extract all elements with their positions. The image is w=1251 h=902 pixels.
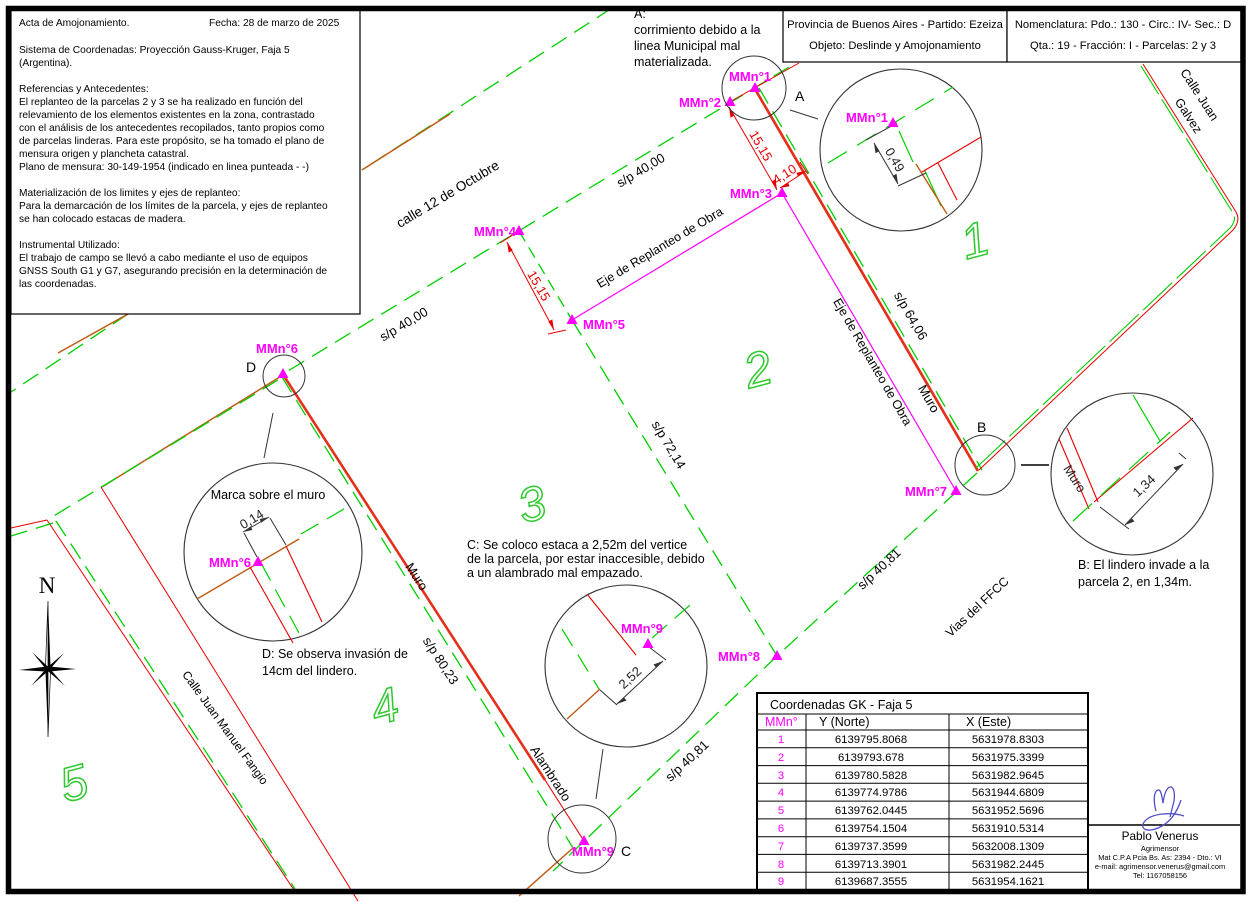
svg-text:MMn°9: MMn°9 [621, 621, 663, 636]
svg-text:El trabajo de campo se llevó a: El trabajo de campo se llevó a cabo medi… [19, 253, 308, 264]
svg-text:Fecha: 28 de marzo de 2025: Fecha: 28 de marzo de 2025 [209, 18, 340, 29]
svg-text:6139713.3901: 6139713.3901 [835, 859, 907, 871]
svg-text:6139687.3555: 6139687.3555 [835, 876, 907, 888]
svg-text:5631944.6809: 5631944.6809 [972, 787, 1044, 799]
svg-text:Para la demarcación de los lím: Para la demarcación de los límites de la… [19, 201, 328, 212]
svg-text:Qta.: 19 - Fracción: I - Parce: Qta.: 19 - Fracción: I - Parcelas: 2 y 3 [1030, 40, 1216, 52]
svg-text:(Argentina).: (Argentina). [19, 58, 72, 69]
svg-text:Y (Norte): Y (Norte) [819, 715, 869, 729]
svg-text:MMn°8: MMn°8 [718, 649, 760, 664]
svg-text:Acta de Amojonamiento.: Acta de Amojonamiento. [19, 18, 129, 29]
svg-text:2: 2 [778, 752, 784, 764]
svg-text:5631975.3399: 5631975.3399 [972, 752, 1044, 764]
svg-text:6: 6 [778, 823, 784, 835]
svg-text:linea Municipal mal: linea Municipal mal [634, 39, 740, 53]
svg-text:MMn°: MMn° [765, 715, 798, 729]
svg-text:6139737.3599: 6139737.3599 [835, 841, 907, 853]
svg-text:6139780.5828: 6139780.5828 [835, 770, 907, 782]
svg-text:Sistema de Coordenadas: Proyec: Sistema de Coordenadas: Proyección Gauss… [19, 45, 290, 56]
svg-text:MMn°6: MMn°6 [209, 555, 251, 570]
svg-text:4: 4 [778, 787, 784, 799]
svg-text:MMn°6: MMn°6 [256, 341, 298, 356]
svg-text:6139793.678: 6139793.678 [838, 752, 904, 764]
svg-text:5: 5 [778, 805, 784, 817]
svg-text:14cm del lindero.: 14cm del lindero. [262, 664, 357, 678]
svg-text:6139774.9786: 6139774.9786 [835, 787, 907, 799]
svg-text:Materialización de los limites: Materialización de los limites y ejes de… [19, 188, 240, 199]
svg-text:D: D [246, 359, 256, 375]
svg-text:Instrumental Utilizado:: Instrumental Utilizado: [19, 240, 120, 251]
svg-text:7: 7 [778, 841, 784, 853]
svg-text:materializada.: materializada. [634, 55, 712, 69]
svg-text:MMn°3: MMn°3 [730, 186, 772, 201]
svg-text:6139762.0445: 6139762.0445 [835, 805, 907, 817]
svg-text:9: 9 [778, 876, 784, 888]
svg-text:MMn°1: MMn°1 [729, 69, 771, 84]
svg-text:Tel: 1167058156: Tel: 1167058156 [1133, 871, 1187, 880]
svg-text:N: N [39, 573, 56, 598]
svg-text:Marca sobre el muro: Marca sobre el muro [211, 488, 326, 502]
svg-text:6139795.8068: 6139795.8068 [835, 734, 907, 746]
svg-text:MMn°2: MMn°2 [679, 95, 721, 110]
svg-text:parcela 2, en 1,34m.: parcela 2, en 1,34m. [1078, 575, 1192, 589]
svg-text:Plano de mensura: 30-149-1954: Plano de mensura: 30-149-1954 (indicado … [19, 162, 309, 173]
svg-text:3: 3 [778, 770, 784, 782]
svg-text:e-mail: agrimensor.venerus@gma: e-mail: agrimensor.venerus@gmail.com [1095, 862, 1225, 871]
svg-text:Objeto: Deslinde y Amojonamien: Objeto: Deslinde y Amojonamiento [809, 40, 981, 52]
svg-text:Nomenclatura: Pdo.: 130 - Circ: Nomenclatura: Pdo.: 130 - Circ.: IV- Sec… [1015, 19, 1231, 31]
svg-text:se han colocado estacas de mad: se han colocado estacas de madera. [19, 214, 186, 225]
svg-text:a un alambrado mal empazado.: a un alambrado mal empazado. [467, 566, 643, 580]
svg-text:8: 8 [778, 859, 784, 871]
svg-text:Coordenadas GK - Faja 5: Coordenadas GK - Faja 5 [770, 698, 912, 712]
svg-text:MMn°7: MMn°7 [905, 484, 947, 499]
svg-text:corrimiento debido a la: corrimiento debido a la [634, 23, 761, 37]
svg-text:MMn°5: MMn°5 [583, 317, 625, 332]
svg-text:El replanteo de la parcelas 2: El replanteo de la parcelas 2 y 3 se ha … [19, 97, 303, 108]
svg-text:5631982.2445: 5631982.2445 [972, 859, 1044, 871]
svg-text:las coordenadas.: las coordenadas. [19, 279, 97, 290]
svg-text:MMn°1: MMn°1 [846, 110, 888, 125]
svg-text:mensura origen y plancheta cat: mensura origen y plancheta catastral. [19, 149, 189, 160]
svg-text:5631952.5696: 5631952.5696 [972, 805, 1044, 817]
svg-text:Referencias y Antecedentes:: Referencias y Antecedentes: [19, 84, 149, 95]
svg-text:MMn°9: MMn°9 [572, 844, 614, 859]
svg-text:de la parcela, por estar inacc: de la parcela, por estar inaccesible, de… [467, 552, 705, 566]
svg-text:Mat C.P.A Pcia Bs. As: 2394 -: Mat C.P.A Pcia Bs. As: 2394 - Dto.: VI [1098, 853, 1222, 862]
svg-text:GNSS South G1 y G7, asegurando: GNSS South G1 y G7, asegurando precisión… [19, 266, 327, 277]
svg-text:Provincia de Buenos Aires - Pa: Provincia de Buenos Aires - Partido: Eze… [787, 19, 1004, 31]
svg-text:Pablo Venerus: Pablo Venerus [1122, 829, 1199, 843]
svg-text:Agrimensor: Agrimensor [1141, 844, 1180, 853]
svg-text:B: El lindero invade a la: B: El lindero invade a la [1078, 558, 1209, 572]
svg-text:A: A [795, 88, 805, 104]
svg-text:5632008.1309: 5632008.1309 [972, 841, 1044, 853]
svg-text:6139754.1504: 6139754.1504 [835, 823, 907, 835]
svg-text:de parcelas linderas. Para est: de parcelas linderas. Para este propósit… [19, 136, 325, 147]
svg-text:MMn°4: MMn°4 [474, 224, 517, 239]
svg-text:5631954.1621: 5631954.1621 [972, 876, 1044, 888]
svg-text:5631982.9645: 5631982.9645 [972, 770, 1044, 782]
svg-text:C: C [621, 843, 631, 859]
svg-text:con el análisis de los anteced: con el análisis de los antecedentes reco… [19, 123, 325, 134]
svg-text:5631978.8303: 5631978.8303 [972, 734, 1044, 746]
svg-text:X (Este): X (Este) [966, 715, 1011, 729]
svg-text:D: Se observa invasión de: D: Se observa invasión de [262, 647, 408, 661]
svg-text:relevamiento de los elementos: relevamiento de los elementos existentes… [19, 110, 315, 121]
svg-text:B: B [977, 419, 986, 435]
svg-text:C: Se coloco estaca a 2,52m de: C: Se coloco estaca a 2,52m del vertice [467, 538, 687, 552]
svg-text:1: 1 [778, 734, 784, 746]
svg-text:5631910.5314: 5631910.5314 [972, 823, 1044, 835]
